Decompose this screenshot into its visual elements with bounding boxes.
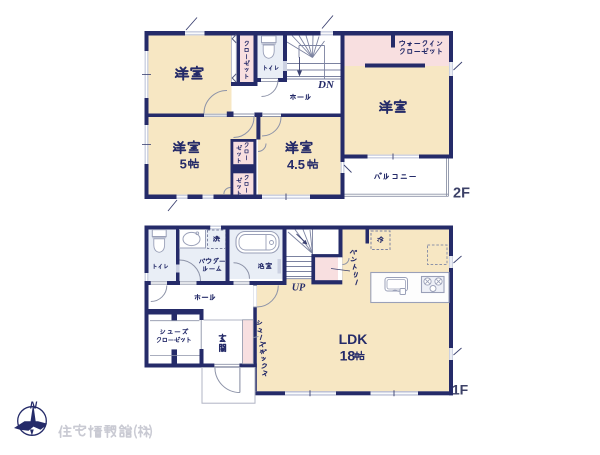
svg-text:LDK: LDK xyxy=(339,331,368,347)
svg-text:1F: 1F xyxy=(452,382,469,398)
svg-text:18: 18 xyxy=(340,348,356,364)
svg-text:5: 5 xyxy=(180,157,187,172)
svg-text:UP: UP xyxy=(292,283,306,294)
svg-text:2F: 2F xyxy=(453,186,470,202)
svg-text:DN: DN xyxy=(317,79,335,91)
svg-text:4.5: 4.5 xyxy=(287,157,305,172)
